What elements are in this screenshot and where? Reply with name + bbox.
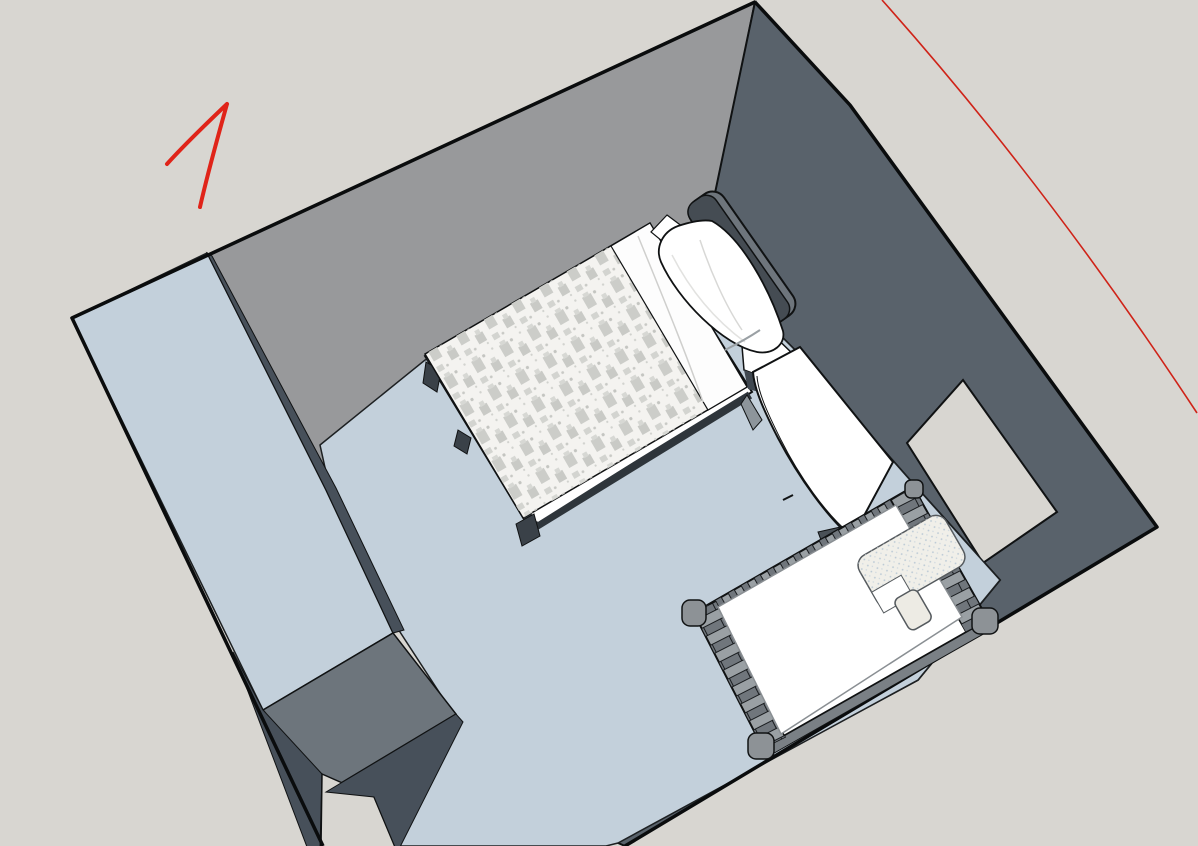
crib-post-right [972, 608, 998, 634]
model-viewport[interactable] [0, 0, 1198, 846]
crib-post-top [905, 480, 923, 498]
crib-post-left [682, 600, 706, 626]
crib-post-bottom [748, 733, 774, 759]
